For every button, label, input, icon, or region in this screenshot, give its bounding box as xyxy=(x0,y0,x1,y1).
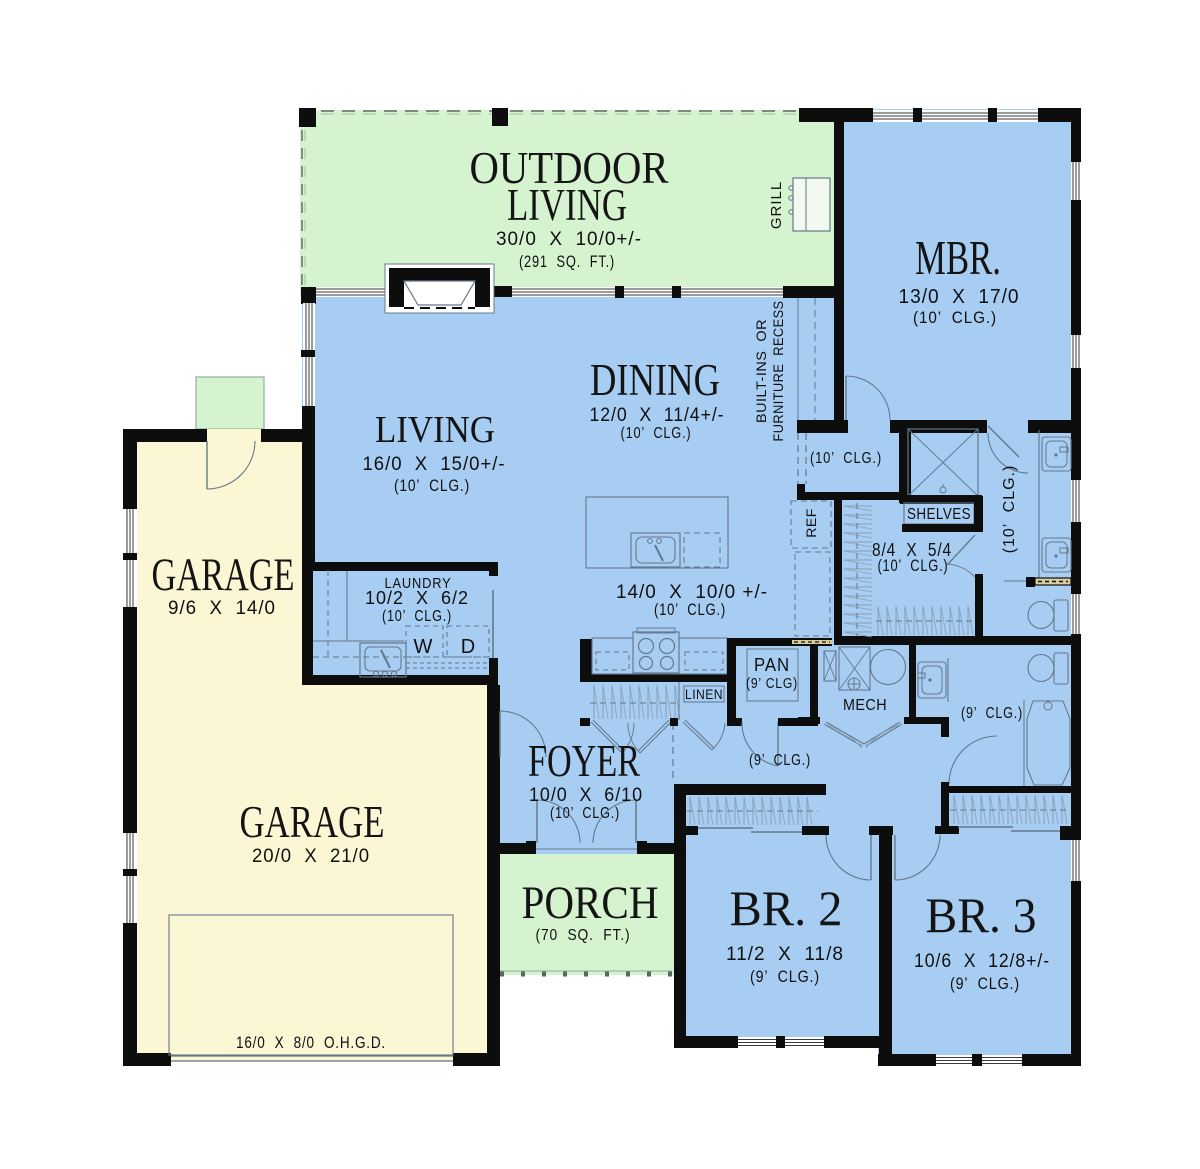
svg-text:(10’ CLG.): (10’ CLG.) xyxy=(878,556,949,575)
svg-text:(10’ CLG.): (10’ CLG.) xyxy=(394,476,470,495)
svg-text:30/0 X 10/0+/-: 30/0 X 10/0+/- xyxy=(496,229,642,250)
svg-text:MECH: MECH xyxy=(843,697,887,714)
svg-text:(9’ CLG.): (9’ CLG.) xyxy=(749,752,811,769)
svg-text:REF: REF xyxy=(803,508,819,538)
svg-text:10/0 X 6/10: 10/0 X 6/10 xyxy=(529,785,643,806)
svg-text:(9’ CLG.): (9’ CLG.) xyxy=(950,974,1020,993)
svg-text:(9’ CLG.): (9’ CLG.) xyxy=(750,967,820,986)
svg-text:LINEN: LINEN xyxy=(685,686,723,702)
svg-text:(9’ CLG.): (9’ CLG.) xyxy=(961,705,1023,722)
svg-text:FURNITURE RECESS: FURNITURE RECESS xyxy=(770,301,786,442)
svg-text:BUILT-INS OR: BUILT-INS OR xyxy=(753,319,769,423)
svg-text:9/6 X 14/0: 9/6 X 14/0 xyxy=(168,598,276,619)
svg-text:(10’ CLG.): (10’ CLG.) xyxy=(810,450,882,467)
svg-text:PAN: PAN xyxy=(754,655,790,675)
svg-text:16/0 X 15/0+/-: 16/0 X 15/0+/- xyxy=(363,454,506,475)
svg-text:BR. 3: BR. 3 xyxy=(926,887,1037,943)
svg-text:12/0 X 11/4+/-: 12/0 X 11/4+/- xyxy=(590,405,725,426)
svg-text:(10’ CLG.): (10’ CLG.) xyxy=(550,805,620,822)
svg-text:11/2 X 11/8: 11/2 X 11/8 xyxy=(726,944,844,965)
svg-text:(10’ CLG.): (10’ CLG.) xyxy=(654,600,726,619)
svg-text:GARAGE: GARAGE xyxy=(152,549,295,601)
svg-text:20/0 X 21/0: 20/0 X 21/0 xyxy=(252,846,370,867)
svg-text:LIVING: LIVING xyxy=(375,409,495,451)
svg-text:(9’ CLG): (9’ CLG) xyxy=(746,675,798,692)
svg-text:(10’ CLG.): (10’ CLG.) xyxy=(913,308,997,327)
svg-text:(70 SQ. FT.): (70 SQ. FT.) xyxy=(536,927,631,944)
svg-text:BR. 2: BR. 2 xyxy=(730,880,843,936)
svg-text:D: D xyxy=(461,636,475,658)
svg-text:(291 SQ. FT.): (291 SQ. FT.) xyxy=(519,252,615,271)
svg-text:10/6 X 12/8+/-: 10/6 X 12/8+/- xyxy=(914,951,1050,972)
svg-text:MBR.: MBR. xyxy=(915,230,1001,285)
svg-text:FOYER: FOYER xyxy=(528,735,640,786)
svg-text:GARAGE: GARAGE xyxy=(240,796,385,847)
svg-text:(10’ CLG.): (10’ CLG.) xyxy=(621,425,692,442)
svg-text:SHELVES: SHELVES xyxy=(907,506,971,523)
svg-text:W: W xyxy=(414,636,433,658)
svg-text:(10’ CLG.): (10’ CLG.) xyxy=(1001,465,1018,554)
svg-text:16/0 X 8/0 O.H.G.D.: 16/0 X 8/0 O.H.G.D. xyxy=(236,1033,386,1052)
svg-text:PORCH: PORCH xyxy=(522,877,659,929)
svg-text:LIVING: LIVING xyxy=(507,180,627,230)
svg-text:(10’ CLG.): (10’ CLG.) xyxy=(382,608,452,625)
svg-text:10/2 X 6/2: 10/2 X 6/2 xyxy=(365,588,469,608)
svg-text:GRILL: GRILL xyxy=(768,181,785,229)
svg-text:13/0 X 17/0: 13/0 X 17/0 xyxy=(899,286,1020,308)
svg-text:DINING: DINING xyxy=(590,355,720,405)
